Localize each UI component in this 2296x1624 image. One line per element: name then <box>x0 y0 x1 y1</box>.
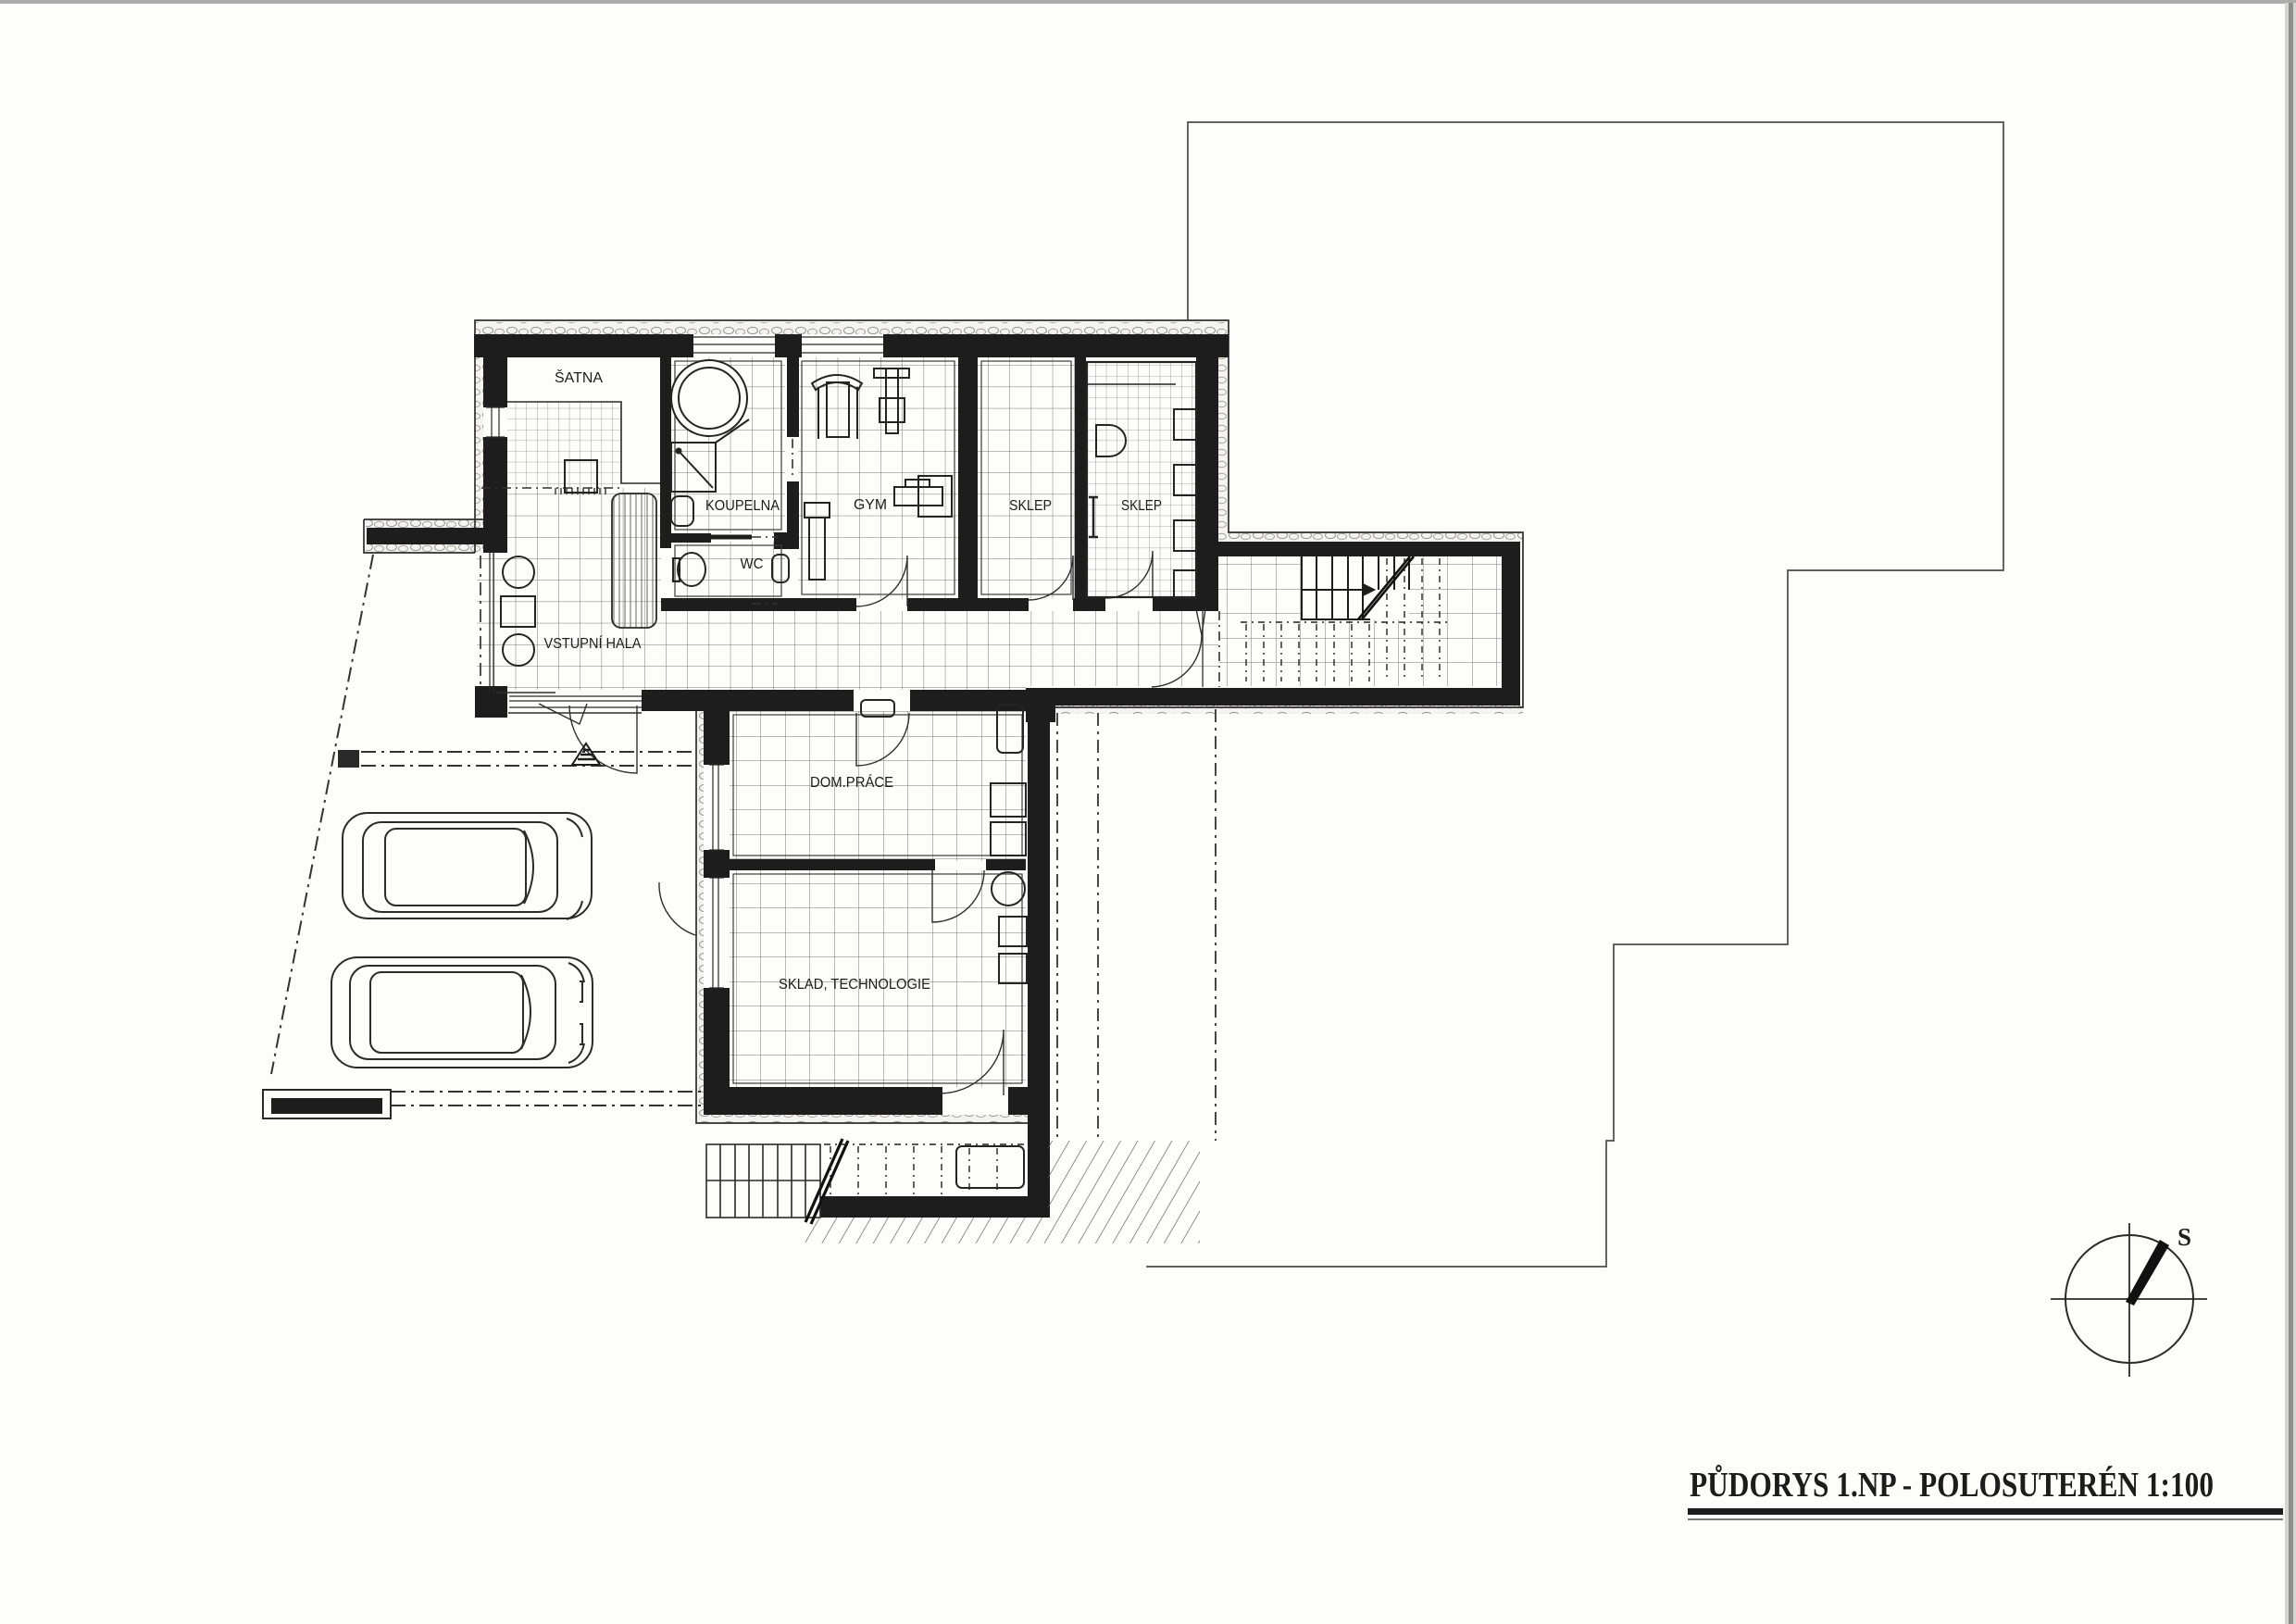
svg-text:SKLEP: SKLEP <box>1121 498 1162 514</box>
svg-text:GYM: GYM <box>854 497 887 513</box>
svg-text:SKLAD, TECHNOLOGIE: SKLAD, TECHNOLOGIE <box>779 977 930 993</box>
svg-text:S: S <box>2177 1223 2191 1251</box>
svg-text:SKLEP: SKLEP <box>1009 498 1052 514</box>
svg-text:PŮDORYS 1.NP - POLOSUTERÉN 1:1: PŮDORYS 1.NP - POLOSUTERÉN 1:100 <box>1690 1464 2214 1505</box>
svg-text:WC: WC <box>741 556 764 572</box>
svg-text:VSTUPNÍ HALA: VSTUPNÍ HALA <box>544 634 642 652</box>
svg-text:DOM.PRÁCE: DOM.PRÁCE <box>810 773 893 791</box>
svg-text:KOUPELNA: KOUPELNA <box>705 498 780 514</box>
svg-text:ŠATNA: ŠATNA <box>555 369 603 386</box>
